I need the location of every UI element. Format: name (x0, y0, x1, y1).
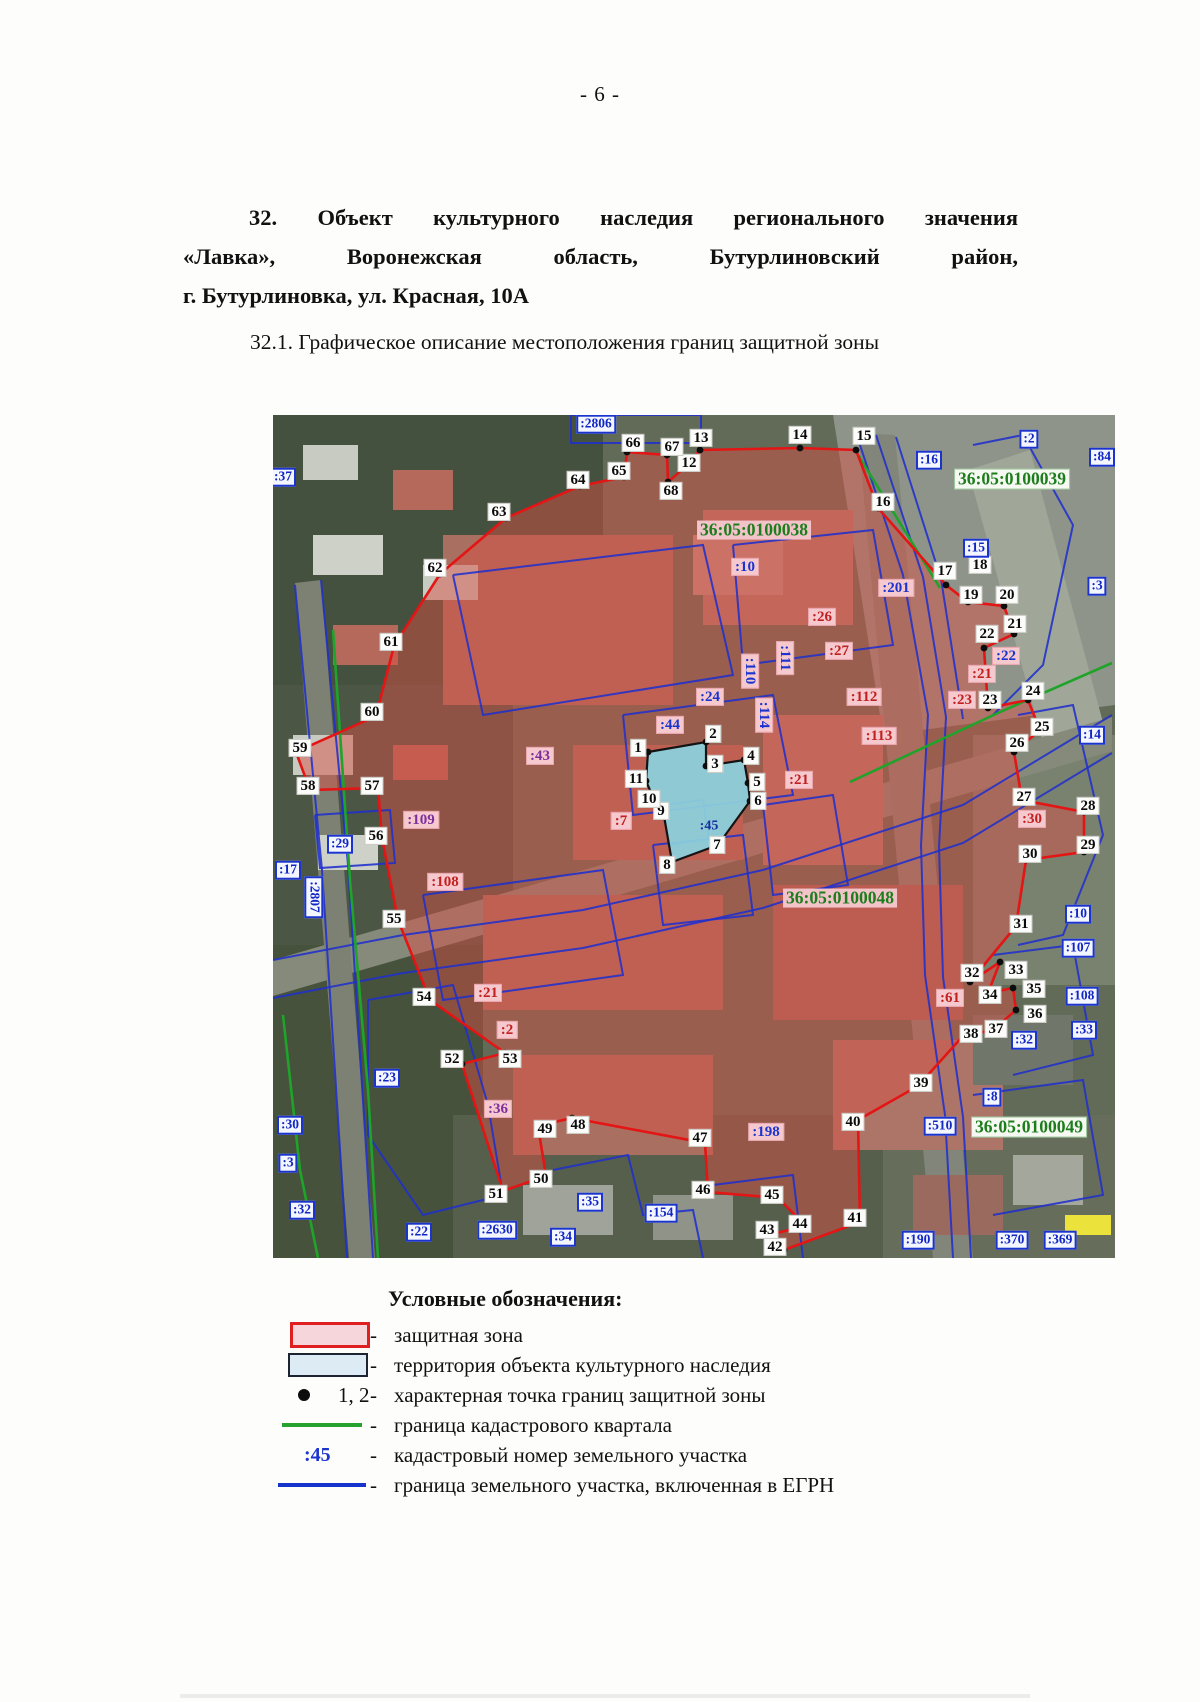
map-label: 37 (985, 1020, 1008, 1038)
map-label: 6 (750, 792, 766, 810)
map-label: :44 (656, 716, 684, 734)
map-label: :84 (1089, 448, 1115, 467)
quarter-boundary-line-swatch (282, 1423, 362, 1427)
map-label: 48 (567, 1116, 590, 1134)
map-label: :14 (1079, 726, 1105, 745)
map-label: :35 (577, 1193, 603, 1212)
map-label: 7 (709, 836, 725, 854)
heading-line-1: 32. Объект культурного наследия регионал… (183, 198, 1018, 237)
map-label: :369 (1044, 1231, 1077, 1250)
legend-item-label: граница кадастрового квартала (394, 1413, 672, 1438)
map-label: :108 (1066, 987, 1099, 1006)
map-label: :29 (327, 835, 353, 854)
map-label: 65 (608, 462, 631, 480)
map-label: :3 (278, 1154, 297, 1173)
map-label: :15 (963, 539, 989, 558)
map-label: 12 (678, 454, 701, 472)
map-label: :10 (1065, 905, 1091, 924)
map-label: 30 (1019, 845, 1042, 863)
map-label: :17 (275, 861, 301, 880)
map-label: 60 (361, 703, 384, 721)
map-label: :2806 (576, 415, 616, 433)
map-label: 19 (960, 586, 983, 604)
legend-item-parcel-boundary: - граница земельного участка, включенная… (260, 1470, 840, 1500)
map-label: 50 (530, 1170, 553, 1188)
map-label: 47 (689, 1129, 712, 1147)
map-label: 54 (413, 988, 436, 1006)
legend-dash: - (370, 1323, 394, 1348)
map-label: :36 (484, 1100, 512, 1118)
map-label: :22 (992, 647, 1020, 665)
map-label: 2 (705, 725, 721, 743)
cadastral-map: 1234567891011121314151617181920212223242… (273, 415, 1115, 1258)
map-label: :201 (878, 579, 914, 597)
map-label: :23 (374, 1069, 400, 1088)
map-label: 28 (1077, 797, 1100, 815)
map-label: :154 (645, 1204, 678, 1223)
map-label: :2 (497, 1021, 518, 1039)
map-label: :27 (825, 642, 853, 660)
map-label: :34 (550, 1228, 576, 1247)
protective-zone-swatch (290, 1322, 370, 1348)
map-label: :24 (696, 688, 724, 706)
legend-item-boundary-point: 1, 2 - характерная точка границ защитной… (260, 1380, 840, 1410)
legend-dash: - (370, 1413, 394, 1438)
map-label: 53 (499, 1050, 522, 1068)
map-label: 13 (690, 429, 713, 447)
map-label: 20 (996, 586, 1019, 604)
map-label: 66 (622, 434, 645, 452)
map-label: 26 (1006, 734, 1029, 752)
heading-line-3: г. Бутурлиновка, ул. Красная, 10А (183, 276, 1018, 315)
map-label: 61 (380, 633, 403, 651)
map-label: 10 (638, 790, 661, 808)
map-label: 63 (488, 503, 511, 521)
map-label: 68 (660, 482, 683, 500)
legend-dash: - (370, 1383, 394, 1408)
legend-dash: - (370, 1353, 394, 1378)
map-label: 11 (625, 770, 647, 788)
map-label: :26 (808, 608, 836, 626)
map-label: 1 (630, 739, 646, 757)
map-label: :190 (902, 1231, 935, 1250)
legend-item-heritage-territory: - территория объекта культурного наследи… (260, 1350, 840, 1380)
legend-item-label: кадастровый номер земельного участка (394, 1443, 747, 1468)
legend-dash: - (370, 1473, 394, 1498)
map-label: 45 (761, 1186, 784, 1204)
map-label: 40 (842, 1113, 865, 1131)
map-label: 62 (424, 559, 447, 577)
map-label: :107 (1062, 939, 1095, 958)
map-label: :32 (289, 1201, 315, 1220)
map-label: 41 (844, 1209, 867, 1227)
map-label: 14 (789, 426, 812, 444)
scan-artifact (180, 1694, 1030, 1698)
legend-item-label: характерная точка границ защитной зоны (394, 1383, 765, 1408)
map-label: :112 (847, 688, 882, 706)
map-label: :43 (526, 747, 554, 765)
map-label: 36 (1024, 1005, 1047, 1023)
map-label: 49 (534, 1120, 557, 1138)
page-number: - 6 - (0, 82, 1200, 107)
map-label: 24 (1022, 682, 1045, 700)
map-label: :2807 (305, 876, 324, 918)
map-label: :33 (1071, 1021, 1097, 1040)
map-label: :110 (741, 654, 759, 689)
map-label: 64 (567, 471, 590, 489)
map-label: :32 (1011, 1031, 1037, 1050)
map-label: 57 (361, 777, 384, 795)
map-label: :8 (982, 1088, 1001, 1107)
map-label: :198 (748, 1123, 784, 1141)
map-label: 15 (853, 427, 876, 445)
map-label: 18 (969, 556, 992, 574)
map-label: :23 (948, 691, 976, 709)
legend: Условные обозначения: - защитная зона - … (260, 1286, 840, 1500)
map-label: :22 (406, 1223, 432, 1242)
map-label: 23 (979, 691, 1002, 709)
legend-item-cadastral-number: :45 - кадастровый номер земельного участ… (260, 1440, 840, 1470)
map-label: :2 (1019, 430, 1038, 449)
cadastral-number-sample: :45 (304, 1444, 331, 1467)
map-label: 42 (764, 1238, 787, 1256)
map-label: 31 (1010, 915, 1033, 933)
map-label: 38 (960, 1025, 983, 1043)
map-label: 36:05:0100039 (954, 469, 1070, 490)
map-label: :37 (273, 468, 296, 487)
map-label: 16 (872, 493, 895, 511)
map-label: :30 (277, 1116, 303, 1135)
map-label: 3 (707, 755, 723, 773)
map-label: :21 (474, 984, 502, 1002)
section-heading: 32. Объект культурного наследия регионал… (183, 198, 1018, 315)
map-label: :114 (755, 698, 773, 733)
map-label: :10 (731, 558, 759, 576)
map-label: :45 (697, 818, 722, 833)
map-labels-layer: 1234567891011121314151617181920212223242… (273, 415, 1115, 1258)
map-label: 58 (297, 777, 320, 795)
legend-title: Условные обозначения: (388, 1286, 840, 1312)
legend-item-protective-zone: - защитная зона (260, 1320, 840, 1350)
map-label: :370 (996, 1231, 1029, 1250)
map-label: 34 (979, 986, 1002, 1004)
map-label: :61 (936, 989, 964, 1007)
map-label: :21 (968, 665, 996, 683)
map-label: 67 (661, 438, 684, 456)
map-label: 4 (743, 747, 759, 765)
boundary-point-sample: 1, 2 (338, 1383, 370, 1408)
map-label: 33 (1005, 961, 1028, 979)
map-label: 22 (976, 625, 999, 643)
map-label: 51 (485, 1185, 508, 1203)
map-label: 44 (789, 1215, 812, 1233)
map-label: 46 (692, 1181, 715, 1199)
map-label: 27 (1013, 788, 1036, 806)
map-label: 29 (1077, 836, 1100, 854)
map-label: :7 (611, 812, 632, 830)
map-label: 39 (910, 1074, 933, 1092)
map-label: 25 (1031, 718, 1054, 736)
legend-item-label: территория объекта культурного наследия (394, 1353, 771, 1378)
map-label: 52 (441, 1050, 464, 1068)
map-label: :113 (862, 727, 897, 745)
map-label: :108 (427, 873, 463, 891)
map-label: 36:05:0100048 (783, 889, 897, 908)
map-label: 5 (749, 773, 765, 791)
map-label: :21 (785, 771, 813, 789)
map-label: :510 (924, 1117, 957, 1136)
map-label: 32 (961, 964, 984, 982)
map-label: :109 (403, 811, 439, 829)
heritage-territory-swatch (288, 1353, 368, 1377)
map-label: 59 (289, 739, 312, 757)
map-label: :3 (1087, 577, 1106, 596)
map-label: 55 (383, 910, 406, 928)
map-label: :16 (916, 451, 942, 470)
map-label: 8 (659, 856, 675, 874)
map-label: :30 (1018, 810, 1046, 828)
legend-dash: - (370, 1443, 394, 1468)
map-label: 17 (934, 562, 957, 580)
heading-line-2: «Лавка», Воронежская область, Бутурлинов… (183, 237, 1018, 276)
map-label: 56 (365, 827, 388, 845)
map-label: 36:05:0100038 (697, 521, 811, 540)
parcel-boundary-line-swatch (278, 1483, 366, 1487)
map-label: 36:05:0100049 (971, 1117, 1087, 1138)
legend-item-quarter-boundary: - граница кадастрового квартала (260, 1410, 840, 1440)
map-label: 21 (1004, 615, 1027, 633)
map-label: :2630 (477, 1221, 517, 1240)
map-label: :111 (776, 641, 794, 675)
legend-item-label: граница земельного участка, включенная в… (394, 1473, 834, 1498)
legend-item-label: защитная зона (394, 1323, 523, 1348)
map-label: 35 (1023, 980, 1046, 998)
subsection-heading: 32.1. Графическое описание местоположени… (250, 330, 1030, 355)
map-label: 43 (756, 1221, 779, 1239)
boundary-point-dot-icon (298, 1389, 310, 1401)
